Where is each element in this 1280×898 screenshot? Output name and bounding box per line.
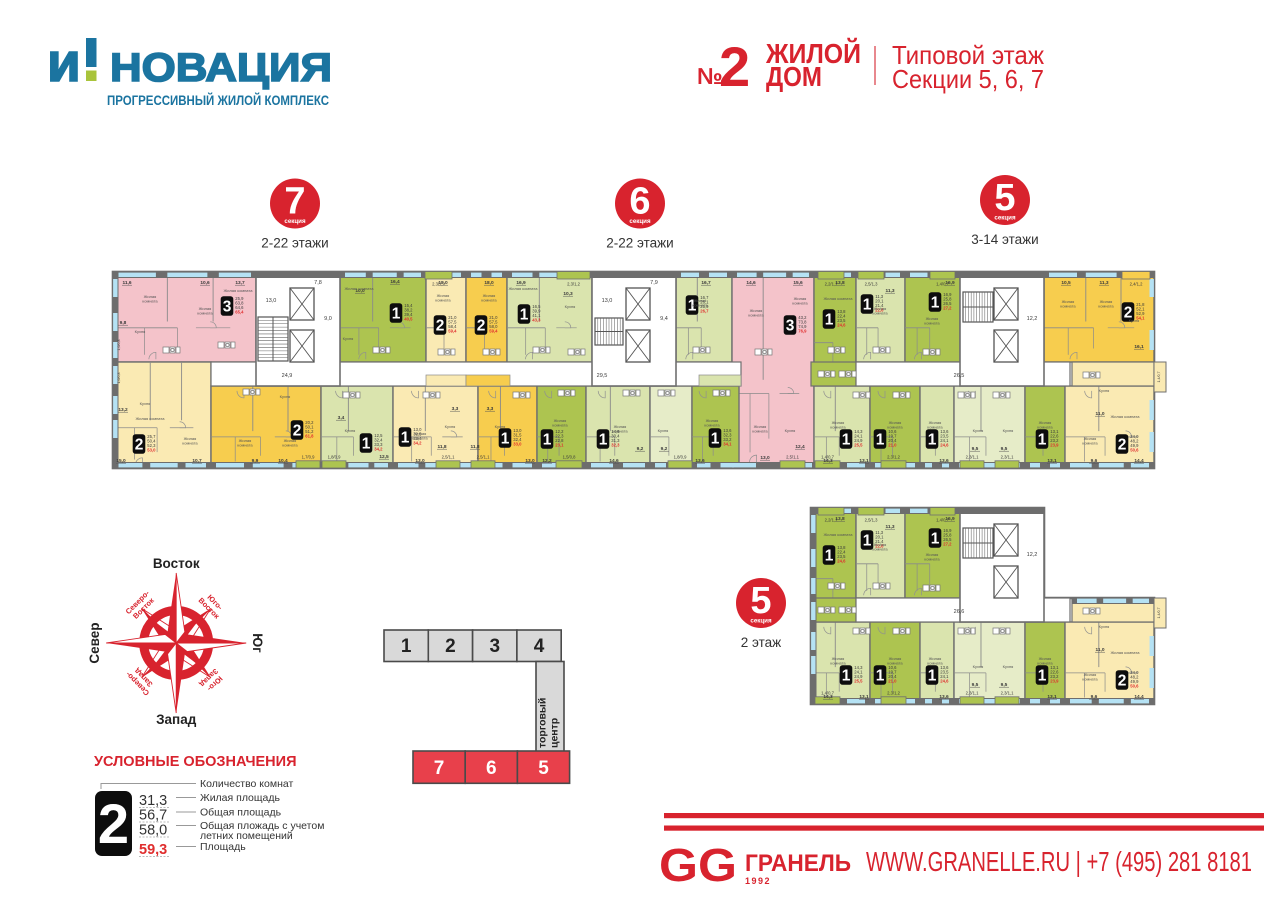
svg-text:61,8: 61,8: [305, 434, 314, 439]
svg-text:комната: комната: [1060, 304, 1076, 309]
svg-text:58,0: 58,0: [139, 823, 167, 839]
svg-text:5: 5: [994, 177, 1015, 219]
svg-text:1: 1: [362, 436, 371, 453]
svg-text:Кухня: Кухня: [973, 428, 984, 433]
svg-text:34,2: 34,2: [413, 441, 422, 446]
svg-text:27,2: 27,2: [943, 542, 952, 547]
svg-text:комната: комната: [1037, 425, 1053, 430]
svg-text:21,0: 21,0: [888, 443, 897, 448]
svg-text:Север: Север: [87, 622, 102, 663]
svg-text:Площадь: Площадь: [200, 841, 246, 853]
svg-text:1: 1: [842, 668, 851, 685]
svg-text:Жилая комната: Жилая комната: [824, 532, 854, 537]
svg-text:32,3: 32,3: [611, 443, 620, 448]
svg-text:24,6: 24,6: [837, 559, 846, 564]
svg-text:комната: комната: [1082, 441, 1098, 446]
svg-text:21,0: 21,0: [888, 679, 897, 684]
svg-text:3: 3: [786, 318, 795, 335]
svg-text:Восток: Восток: [153, 556, 200, 571]
svg-text:7: 7: [434, 758, 445, 779]
svg-text:6: 6: [629, 181, 650, 223]
svg-text:2,3/1,1: 2,3/1,1: [1001, 691, 1014, 696]
svg-text:комната: комната: [830, 661, 846, 666]
svg-text:1992: 1992: [745, 876, 771, 886]
svg-text:1: 1: [520, 307, 529, 324]
svg-text:2,5/1,3: 2,5/1,3: [865, 282, 878, 287]
svg-text:Кухня: Кухня: [495, 424, 506, 429]
svg-text:Жилая комната: Жилая комната: [1111, 414, 1141, 419]
svg-text:1: 1: [501, 431, 510, 448]
svg-text:65,4: 65,4: [235, 310, 244, 315]
svg-text:2,5/1,3: 2,5/1,3: [865, 518, 878, 523]
svg-text:1,4/0,7: 1,4/0,7: [1157, 608, 1161, 619]
svg-text:50,6: 50,6: [1130, 684, 1139, 689]
svg-text:27,2: 27,2: [943, 306, 952, 311]
svg-text:Количество комнат: Количество комнат: [200, 778, 293, 790]
svg-text:1,4/0,7: 1,4/0,7: [1157, 372, 1161, 383]
svg-text:центр: центр: [549, 718, 561, 748]
svg-text:комната: комната: [197, 311, 213, 316]
svg-text:2: 2: [1118, 437, 1127, 454]
svg-text:50,6: 50,6: [1130, 448, 1139, 453]
svg-text:Кухня: Кухня: [1099, 388, 1110, 393]
svg-text:2,5/1,1: 2,5/1,1: [477, 455, 490, 460]
svg-text:25,5: 25,5: [854, 679, 863, 684]
svg-text:Кухня: Кухня: [345, 428, 356, 433]
svg-text:1,8/0,9: 1,8/0,9: [674, 455, 687, 460]
svg-text:комната: комната: [752, 429, 768, 434]
svg-text:1,6/0,8: 1,6/0,8: [117, 373, 121, 384]
svg-text:2,5/1,1: 2,5/1,1: [786, 455, 799, 460]
svg-text:секция: секция: [629, 218, 651, 225]
svg-text:23,9: 23,9: [1050, 443, 1059, 448]
svg-text:Кухня: Кухня: [135, 329, 146, 334]
svg-text:2,3/1,1: 2,3/1,1: [1001, 455, 1014, 460]
svg-text:5: 5: [538, 758, 549, 779]
svg-text:комната: комната: [887, 425, 903, 430]
svg-text:53,0: 53,0: [147, 448, 156, 453]
svg-text:1,5/0,8: 1,5/0,8: [563, 455, 576, 460]
svg-text:и: и: [47, 31, 81, 93]
svg-text:1: 1: [928, 432, 937, 449]
svg-text:комната: комната: [1082, 677, 1098, 682]
svg-text:Жилая комната: Жилая комната: [824, 296, 854, 301]
svg-text:Кухня: Кухня: [973, 664, 984, 669]
svg-text:24,6: 24,6: [837, 323, 846, 328]
svg-text:Кухня: Кухня: [445, 424, 456, 429]
svg-text:Жилая площадь: Жилая площадь: [200, 792, 281, 804]
svg-text:секция: секция: [994, 215, 1016, 222]
svg-text:Кухня: Кухня: [565, 304, 576, 309]
svg-text:1: 1: [401, 636, 412, 657]
svg-text:комната: комната: [612, 429, 628, 434]
svg-text:комната: комната: [924, 557, 940, 562]
svg-text:2: 2: [1118, 673, 1127, 690]
svg-text:2: 2: [719, 35, 750, 98]
svg-text:комната: комната: [692, 303, 708, 308]
svg-text:2,3/1,2: 2,3/1,2: [887, 455, 900, 460]
svg-text:комната: комната: [704, 423, 720, 428]
svg-text:2,3/1,1: 2,3/1,1: [966, 455, 979, 460]
svg-text:1: 1: [599, 432, 608, 449]
svg-text:1: 1: [392, 306, 401, 323]
svg-text:4: 4: [534, 636, 545, 657]
svg-text:2,3/1,1: 2,3/1,1: [966, 691, 979, 696]
svg-text:2: 2: [98, 792, 129, 855]
svg-text:7,9: 7,9: [650, 280, 658, 286]
svg-text:комната: комната: [412, 436, 428, 441]
svg-text:59,4: 59,4: [489, 329, 498, 334]
svg-text:Кухня: Кухня: [785, 428, 796, 433]
svg-text:1: 1: [863, 297, 872, 314]
svg-text:1: 1: [711, 431, 720, 448]
svg-text:Запад: Запад: [156, 712, 197, 727]
svg-text:3-14 этажи: 3-14 этажи: [971, 232, 1038, 247]
svg-text:Кухня: Кухня: [1003, 428, 1014, 433]
svg-text:26,6: 26,6: [954, 609, 965, 615]
svg-text:59,3: 59,3: [139, 842, 167, 858]
svg-text:1: 1: [1038, 668, 1047, 685]
svg-text:Кухня: Кухня: [343, 336, 354, 341]
svg-text:13,0: 13,0: [602, 298, 613, 304]
svg-text:56,7: 56,7: [139, 808, 167, 824]
svg-text:43,3: 43,3: [532, 318, 541, 323]
svg-text:комната: комната: [552, 423, 568, 428]
svg-text:комната: комната: [282, 443, 298, 448]
svg-text:76,9: 76,9: [798, 329, 807, 334]
svg-text:12,2: 12,2: [1027, 552, 1038, 558]
svg-text:34,1: 34,1: [723, 442, 732, 447]
svg-text:Жилая комната: Жилая комната: [224, 288, 254, 293]
svg-text:13,0: 13,0: [266, 298, 277, 304]
svg-text:12,2: 12,2: [1027, 316, 1038, 322]
svg-text:Юг: Юг: [250, 633, 265, 653]
svg-text:секция: секция: [284, 218, 306, 225]
svg-text:40,5: 40,5: [404, 317, 413, 322]
svg-text:2-22 этажи: 2-22 этажи: [261, 236, 328, 251]
svg-text:комната: комната: [182, 441, 198, 446]
svg-text:2-22 этажи: 2-22 этажи: [606, 236, 673, 251]
svg-text:комната: комната: [927, 425, 943, 430]
svg-text:29,5: 29,5: [597, 373, 608, 379]
svg-text:Секции 5, 6, 7: Секции 5, 6, 7: [892, 64, 1044, 94]
svg-text:Кухня: Кухня: [140, 401, 151, 406]
svg-text:1,7/0,9: 1,7/0,9: [302, 455, 315, 460]
svg-text:2,3/1,2: 2,3/1,2: [887, 691, 900, 696]
svg-text:24,6: 24,6: [940, 679, 949, 684]
svg-text:секция: секция: [750, 618, 772, 625]
svg-text:1: 1: [928, 668, 937, 685]
svg-text:2: 2: [135, 437, 144, 454]
svg-text:26,5: 26,5: [954, 373, 965, 379]
svg-text:59,4: 59,4: [448, 329, 457, 334]
svg-text:Жилая комната: Жилая комната: [509, 286, 539, 291]
svg-text:комната: комната: [435, 298, 451, 303]
svg-text:Кухня: Кухня: [280, 394, 291, 399]
svg-text:УСЛОВНЫЕ ОБОЗНАЧЕНИЯ: УСЛОВНЫЕ ОБОЗНАЧЕНИЯ: [94, 754, 297, 770]
svg-text:комната: комната: [872, 311, 888, 316]
svg-text:комната: комната: [830, 425, 846, 430]
svg-text:26,7: 26,7: [700, 309, 709, 314]
svg-text:Кухня: Кухня: [1099, 624, 1110, 629]
svg-text:Общая площадь: Общая площадь: [200, 807, 282, 819]
svg-text:7,8: 7,8: [314, 280, 322, 286]
svg-text:3: 3: [489, 636, 500, 657]
svg-text:1: 1: [931, 531, 940, 548]
svg-text:1: 1: [876, 668, 885, 685]
svg-text:2: 2: [445, 636, 456, 657]
svg-text:2,5/1,1: 2,5/1,1: [442, 455, 455, 460]
svg-text:2,4/1,2: 2,4/1,2: [1130, 282, 1143, 287]
svg-text:1,8/0,9: 1,8/0,9: [328, 455, 341, 460]
svg-text:НОВАЦИЯ: НОВАЦИЯ: [110, 46, 332, 90]
svg-text:9,4: 9,4: [660, 316, 668, 322]
svg-text:1: 1: [931, 295, 940, 312]
svg-text:комната: комната: [237, 443, 253, 448]
svg-text:ПРОГРЕССИВНЫЙ ЖИЛОЙ КОМПЛЕКС: ПРОГРЕССИВНЫЙ ЖИЛОЙ КОМПЛЕКС: [107, 93, 329, 108]
svg-text:24,6: 24,6: [940, 443, 949, 448]
svg-text:комната: комната: [1098, 304, 1114, 309]
svg-text:1: 1: [863, 533, 872, 550]
svg-text:2: 2: [293, 423, 302, 440]
svg-text:комната: комната: [924, 321, 940, 326]
svg-text:2: 2: [436, 318, 445, 335]
svg-text:Жилая комната: Жилая комната: [136, 416, 166, 421]
svg-text:ГРАНЕЛЬ: ГРАНЕЛЬ: [745, 850, 851, 877]
svg-text:5: 5: [750, 580, 771, 622]
svg-text:Жилая комната: Жилая комната: [345, 286, 375, 291]
svg-text:Жилая комната: Жилая комната: [1111, 650, 1141, 655]
svg-text:Кухня: Кухня: [1003, 664, 1014, 669]
svg-text:GG: GG: [659, 839, 737, 891]
svg-text:2,3/1,2: 2,3/1,2: [567, 282, 580, 287]
svg-text:1: 1: [876, 432, 885, 449]
svg-text:3: 3: [223, 299, 232, 316]
svg-text:1: 1: [1038, 432, 1047, 449]
svg-text:WWW.GRANELLE.RU | +7 (495) 281: WWW.GRANELLE.RU | +7 (495) 281 8181: [866, 846, 1252, 877]
svg-text:24,9: 24,9: [282, 373, 293, 379]
svg-text:комната: комната: [887, 661, 903, 666]
svg-text:7: 7: [284, 181, 305, 223]
svg-text:1: 1: [543, 432, 552, 449]
svg-text:1: 1: [825, 312, 834, 329]
svg-text:2 этаж: 2 этаж: [741, 635, 781, 650]
svg-text:Кухня: Кухня: [1129, 318, 1140, 323]
svg-text:9,0: 9,0: [324, 316, 332, 322]
svg-text:комната: комната: [748, 313, 764, 318]
svg-text:Кухня: Кухня: [658, 428, 669, 433]
svg-text:ДОМ: ДОМ: [766, 61, 822, 92]
svg-text:1: 1: [825, 548, 834, 565]
svg-text:торговый: торговый: [537, 698, 549, 748]
svg-text:1: 1: [401, 430, 410, 447]
svg-text:34,2: 34,2: [374, 447, 383, 452]
svg-text:23,1: 23,1: [555, 443, 564, 448]
svg-text:23,9: 23,9: [1050, 679, 1059, 684]
svg-text:33,0: 33,0: [513, 442, 522, 447]
svg-text:комната: комната: [792, 301, 808, 306]
svg-text:25,5: 25,5: [854, 443, 863, 448]
svg-text:1: 1: [842, 432, 851, 449]
svg-text:комната: комната: [142, 299, 158, 304]
svg-text:комната: комната: [927, 661, 943, 666]
svg-text:1,6/0,8: 1,6/0,8: [117, 340, 121, 351]
svg-text:комната: комната: [1037, 661, 1053, 666]
svg-text:комната: комната: [481, 298, 497, 303]
svg-text:6: 6: [486, 758, 497, 779]
svg-text:2: 2: [477, 318, 486, 335]
svg-text:комната: комната: [872, 547, 888, 552]
